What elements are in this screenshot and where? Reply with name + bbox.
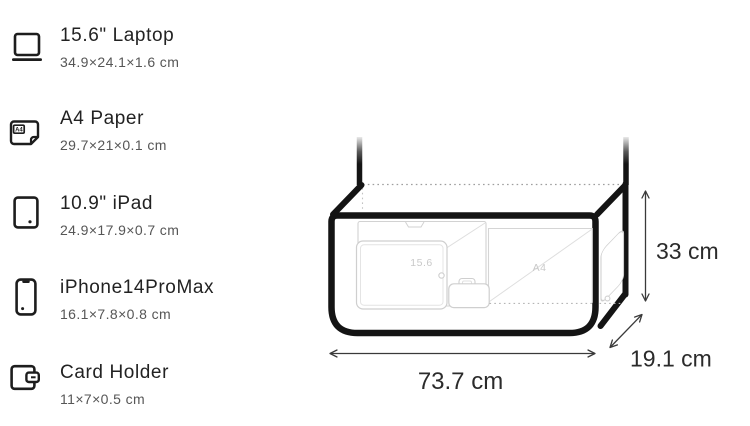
shoulder-straps	[360, 137, 627, 185]
ipad-outline	[357, 241, 448, 309]
size-comparison-panel: 15.6" Laptop 34.9×24.1×1.6 cm A4 A4 Pape…	[0, 0, 750, 426]
depth-dimension: 19.1 cm	[610, 315, 712, 372]
iphone-outline	[601, 228, 624, 304]
width-label: 73.7 cm	[418, 368, 503, 395]
depth-label: 19.1 cm	[630, 346, 712, 372]
laptop-size-label: 15.6	[410, 257, 432, 269]
height-dimension: 33 cm	[646, 191, 719, 301]
bag-top-rim	[333, 185, 626, 215]
height-label: 33 cm	[656, 238, 719, 264]
a4-size-label: A4	[533, 262, 547, 274]
bag-dimension-diagram: 15.6 A4 33 cm 19.1 cm 73.7 cm	[0, 0, 750, 426]
width-dimension: 73.7 cm	[330, 354, 595, 396]
